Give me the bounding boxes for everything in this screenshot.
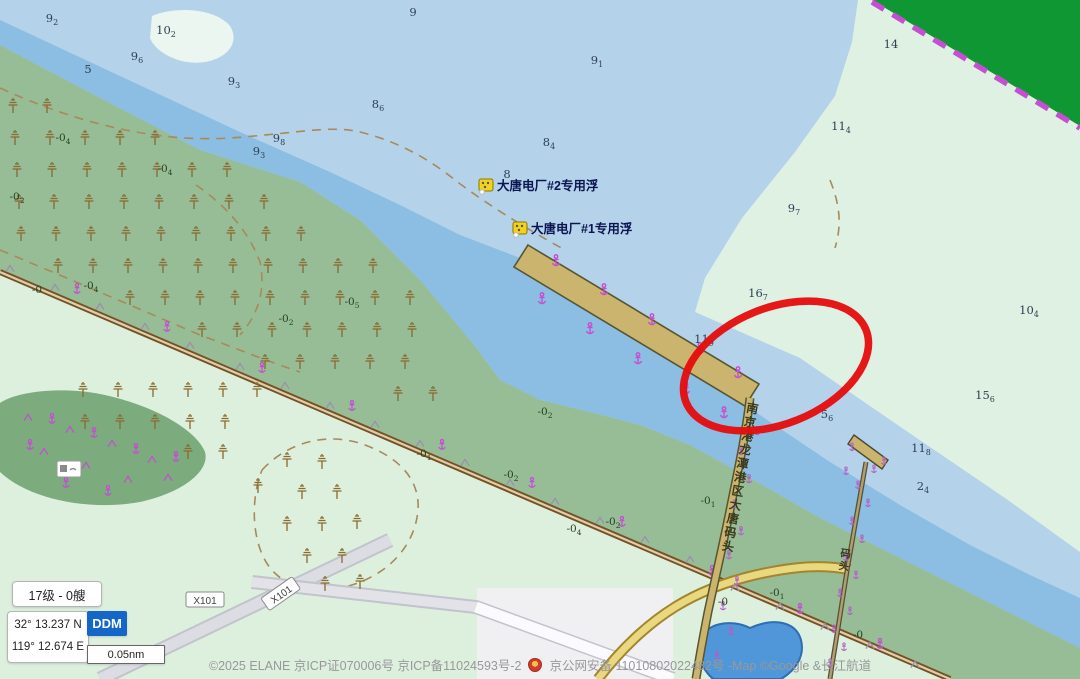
chart-canvas[interactable]: 南京港龙潭港区大唐码头 码头 大唐电厂#2专用浮 大唐电厂#1专用浮 92102… <box>0 0 1080 679</box>
zoom-level-chip: 17级 - 0艘 <box>12 581 102 607</box>
sounding: 8 <box>503 167 510 181</box>
copyright-text-left: ©2025 ELANE 京ICP证070006号 京ICP备11024593号-… <box>209 655 522 674</box>
drying-height: -0 <box>32 284 42 296</box>
buoy-1-label: 大唐电厂#1专用浮 <box>531 221 632 236</box>
chart-note-icon[interactable] <box>57 461 81 477</box>
copyright-text-right: 京公网安备 11010802022482号 -Map ©Google &长江航道 <box>549 655 871 674</box>
sounding: 5 <box>84 62 91 76</box>
sounding: 14 <box>884 37 899 51</box>
latitude-value: 32° 13.237 N <box>14 615 81 637</box>
public-security-badge-icon <box>528 658 542 672</box>
drying-height: -0 <box>853 629 863 641</box>
sounding: 9 <box>409 5 416 19</box>
road-number-chip: X101 <box>186 592 224 607</box>
coordinate-format-toggle[interactable]: DDM <box>87 611 127 636</box>
drying-height: -0 <box>718 596 728 608</box>
copyright-bar: ©2025 ELANE 京ICP证070006号 京ICP备11024593号-… <box>0 655 1080 674</box>
buoy-2-label: 大唐电厂#2专用浮 <box>497 178 598 193</box>
svg-text:X101: X101 <box>193 596 217 607</box>
nautical-chart-svg[interactable]: 南京港龙潭港区大唐码头 码头 大唐电厂#2专用浮 大唐电厂#1专用浮 92102… <box>0 0 1080 679</box>
